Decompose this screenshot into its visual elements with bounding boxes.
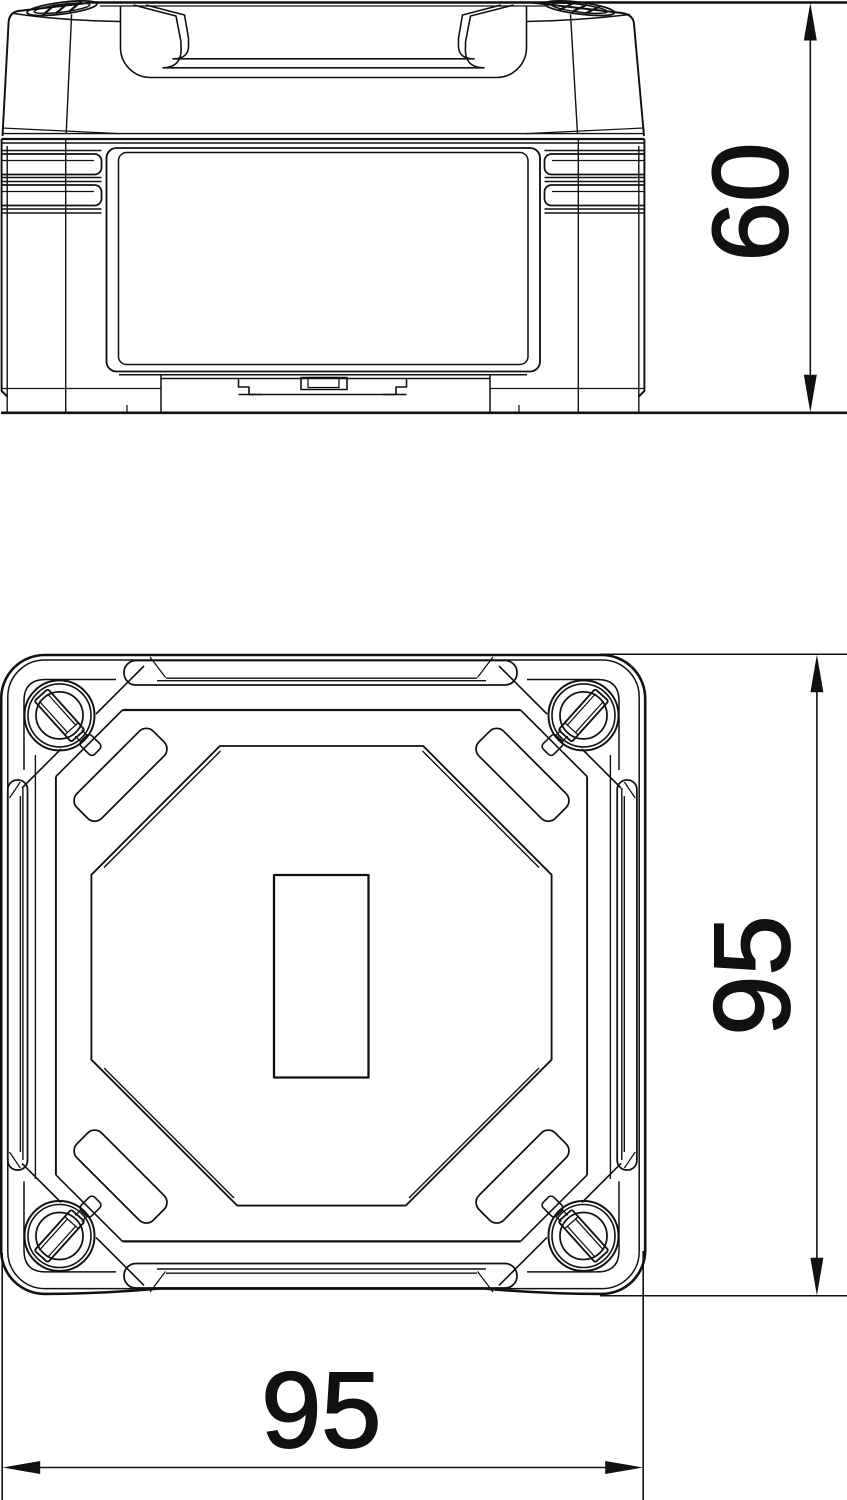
- svg-text:95: 95: [261, 1349, 381, 1470]
- svg-text:95: 95: [691, 915, 812, 1035]
- svg-text:60: 60: [690, 142, 810, 261]
